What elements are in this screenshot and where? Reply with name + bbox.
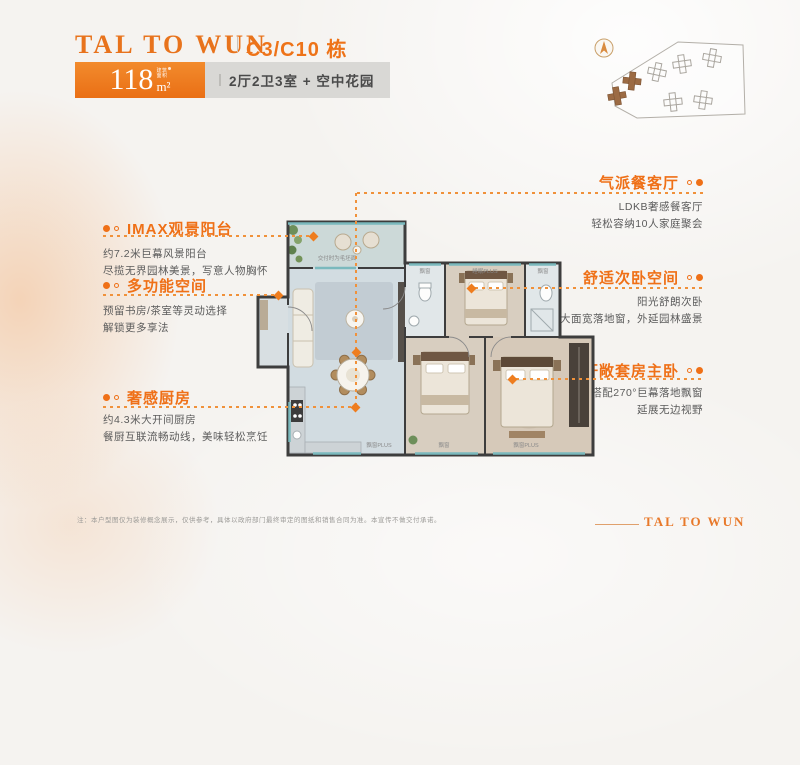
feature-multifunction-room: 多功能空间 — [103, 276, 207, 294]
leader-second-bedroom — [475, 287, 703, 289]
feature-description: 搭配270°巨幕落地飘窗 延展无边视野 — [591, 385, 703, 419]
bay-window-label: 飘窗 — [419, 267, 431, 275]
feature-description: 约4.3米大开间厨房 餐厨互联流畅动线，美味轻松烹饪 — [103, 412, 268, 446]
leader-dining-living — [357, 192, 703, 194]
background-orange-glow — [0, 90, 180, 510]
bullet-dots-icon — [687, 274, 703, 281]
leader-imax-balcony — [103, 235, 313, 237]
bedroom2-label: 睡眠PLUS — [472, 267, 498, 275]
bullet-dots-icon — [687, 367, 703, 374]
feature-description: LDKB奢感餐客厅 轻松容纳10人家庭聚会 — [591, 199, 703, 233]
entry-cabinet — [260, 300, 268, 330]
bay-window-label: 飘窗 — [438, 441, 450, 449]
header-divider — [237, 37, 238, 52]
bullet-dots-icon — [103, 225, 119, 232]
area-value: 118 — [110, 65, 154, 95]
footer-brand-logo: TAL TO WUN — [644, 514, 745, 530]
feature-title: 多功能空间 — [127, 275, 207, 296]
spec-tick — [219, 74, 221, 86]
area-unit: m² — [156, 80, 170, 93]
leader-master-bedroom — [516, 378, 703, 380]
area-note-bottom: 面积 — [156, 74, 167, 79]
site-plan — [585, 28, 765, 136]
disclaimer-text: 注：本户型图仅为装修概念展示，仅供参考，具体以政府部门最终审定的图纸和销售合同为… — [77, 514, 441, 524]
bay-window-label: 飘窗 — [537, 267, 549, 275]
brand-logo: TAL TO WUN — [75, 30, 268, 60]
spec-text: 2厅2卫3室 + 空中花园 — [229, 70, 374, 90]
feature-description: 预留书房/茶室等灵动选择 解锁更多享法 — [103, 303, 227, 337]
feature-dining-living: 气派餐客厅 — [599, 173, 703, 191]
bay-window-label: 飘窗PLUS — [366, 441, 392, 449]
master-bed — [493, 357, 561, 438]
feature-master-bedroom: 轩敞套房主卧 — [583, 361, 703, 379]
bedroom-2-bed — [459, 271, 513, 325]
footer-divider-line — [595, 524, 639, 525]
stove — [291, 400, 303, 422]
bullet-dots-icon — [687, 179, 703, 186]
bullet-dots-icon — [103, 282, 119, 289]
area-badge: 118 建筑 面积 m² — [75, 62, 205, 98]
floor-plan: 交付时为毛坯面 飘窗 睡眠PLUS 飘窗 飘窗PLUS 飘窗 飘窗PLUS — [253, 197, 595, 467]
balcony-note: 交付时为毛坯面 — [318, 254, 357, 262]
plant — [409, 436, 418, 445]
spec-badge: 2厅2卫3室 + 空中花园 — [205, 62, 390, 98]
leader-kitchen — [103, 406, 355, 408]
bed-bench — [509, 431, 545, 438]
master-wardrobe — [569, 343, 589, 427]
leader-multifunction — [103, 294, 278, 296]
feature-kitchen: 奢感厨房 — [103, 388, 191, 406]
feature-title: 舒适次卧空间 — [583, 267, 679, 288]
sofa — [293, 289, 313, 367]
feature-second-bedroom: 舒适次卧空间 — [583, 268, 703, 286]
feature-title: 奢感厨房 — [127, 387, 191, 408]
building-label: C3/C10 栋 — [246, 33, 347, 62]
sink — [293, 431, 301, 439]
bullet-dots-icon — [103, 394, 119, 401]
feature-title: 气派餐客厅 — [599, 172, 679, 193]
bay-window-label: 飘窗PLUS — [513, 441, 539, 449]
leader-dining-vertical — [355, 193, 357, 407]
